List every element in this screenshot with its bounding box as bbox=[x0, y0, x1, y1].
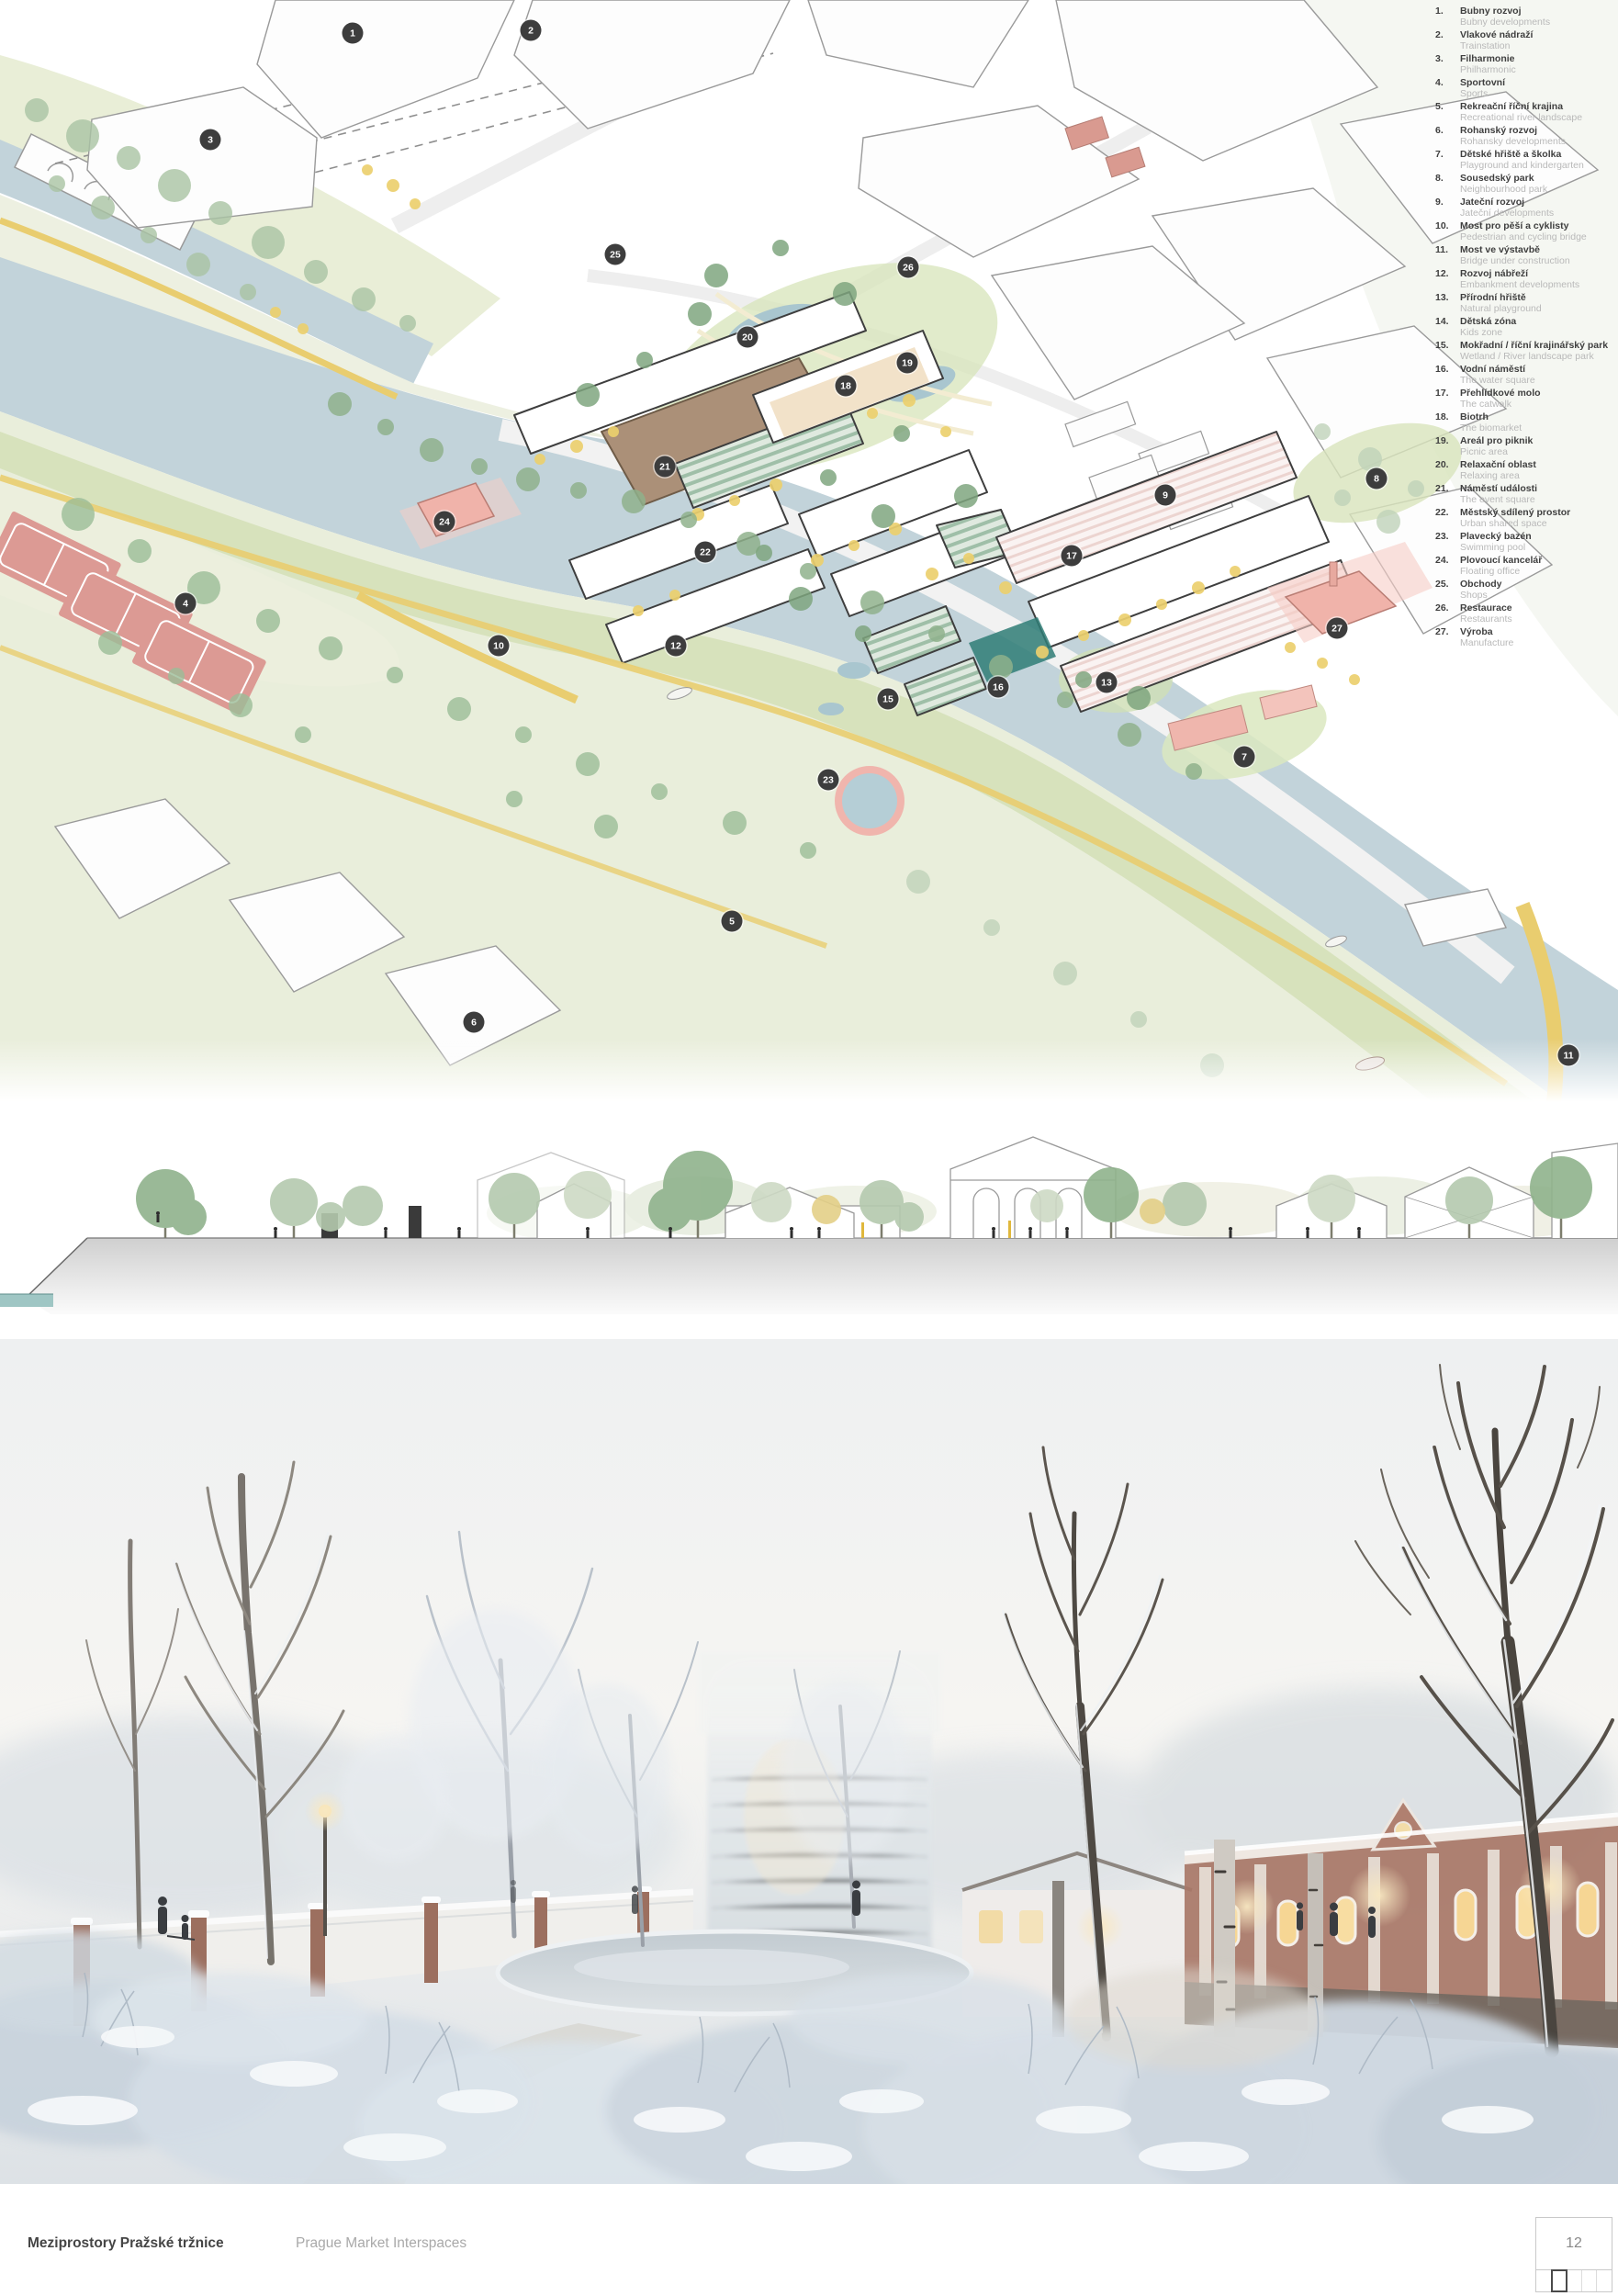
legend-item: 27. Výroba Manufacture bbox=[1435, 627, 1618, 648]
winter-render bbox=[0, 1339, 1618, 2184]
legend-item: 17. Přehlídkové molo The catwalk bbox=[1435, 388, 1618, 410]
legend-item: 6. Rohanský rozvoj Rohansky developments bbox=[1435, 126, 1618, 147]
legend-item: 8. Sousedský park Neighbourhood park bbox=[1435, 174, 1618, 195]
legend-item-label-cz: Mokřadní / říční krajinářský park bbox=[1460, 341, 1608, 352]
legend-item: 19. Areál pro piknik Picnic area bbox=[1435, 436, 1618, 457]
legend-item: 15. Mokřadní / říční krajinářský park We… bbox=[1435, 341, 1618, 362]
legend-item-labels: Rozvoj nábřeží Embankment developments bbox=[1460, 269, 1579, 290]
legend-item-label-en: Picnic area bbox=[1460, 447, 1533, 458]
legend-item: 22. Městský sdílený prostor Urban shared… bbox=[1435, 508, 1618, 529]
lit-window bbox=[979, 1910, 1003, 1943]
legend-item-labels: Most ve výstavbě Bridge under constructi… bbox=[1460, 245, 1570, 266]
legend-item-labels: Výroba Manufacture bbox=[1460, 627, 1513, 648]
legend-item-number: 3. bbox=[1435, 54, 1460, 75]
legend-item-labels: Přehlídkové molo The catwalk bbox=[1460, 388, 1541, 410]
legend-item-labels: Vodní náměstí The water square bbox=[1460, 365, 1535, 386]
legend-item-number: 11. bbox=[1435, 245, 1460, 266]
project-title-cz: Meziprostory Pražské tržnice bbox=[28, 2235, 224, 2252]
legend-item-number: 9. bbox=[1435, 197, 1460, 219]
legend-item: 5. Rekreační říční krajina Recreational … bbox=[1435, 102, 1618, 123]
legend-item-label-cz: Městský sdílený prostor bbox=[1460, 508, 1570, 519]
legend-item: 23. Plavecký bazén Swimming pool bbox=[1435, 532, 1618, 553]
legend-item-label-en: Neighbourhood park bbox=[1460, 185, 1547, 196]
page-number: 12 bbox=[1536, 2218, 1612, 2270]
render-artwork bbox=[0, 1339, 1618, 2184]
legend-item-label-en: Wetland / River landscape park bbox=[1460, 352, 1608, 363]
legend-item-label-en: Rohansky developments bbox=[1460, 137, 1566, 148]
legend-item-label-en: The catwalk bbox=[1460, 400, 1541, 411]
legend-item-labels: Filharmonie Philharmonic bbox=[1460, 54, 1516, 75]
legend-item-label-cz: Restaurace bbox=[1460, 603, 1512, 614]
legend-item: 21. Náměstí události The event square bbox=[1435, 484, 1618, 505]
pagination-cells bbox=[1536, 2270, 1612, 2291]
legend-item-labels: Bubny rozvoj Bubny developments bbox=[1460, 6, 1550, 28]
legend-item-label-cz: Rohanský rozvoj bbox=[1460, 126, 1566, 137]
legend-item-number: 27. bbox=[1435, 627, 1460, 648]
legend-item-label-en: Shops bbox=[1460, 591, 1502, 602]
legend-item-labels: Biotrh The biomarket bbox=[1460, 412, 1522, 433]
legend-item-label-en: Floating office bbox=[1460, 567, 1542, 578]
legend-item: 12. Rozvoj nábřeží Embankment developmen… bbox=[1435, 269, 1618, 290]
yellow-figure bbox=[1008, 1221, 1011, 1238]
legend-item-label-cz: Most ve výstavbě bbox=[1460, 245, 1570, 256]
project-title-en: Prague Market Interspaces bbox=[296, 2235, 466, 2252]
legend-item-label-cz: Plavecký bazén bbox=[1460, 532, 1532, 543]
legend-item-label-en: Jateční developments bbox=[1460, 208, 1554, 219]
sculpture bbox=[409, 1206, 421, 1238]
pagination-cell bbox=[1536, 2270, 1552, 2291]
legend-item-number: 7. bbox=[1435, 150, 1460, 171]
legend-item-label-en: Relaxing area bbox=[1460, 471, 1536, 482]
lantern-glow bbox=[1348, 1864, 1410, 1927]
legend-item-labels: Sousedský park Neighbourhood park bbox=[1460, 174, 1547, 195]
legend-item-label-cz: Areál pro piknik bbox=[1460, 436, 1533, 447]
legend-item-label-cz: Obchody bbox=[1460, 580, 1502, 591]
legend-item-labels: Relaxační oblast Relaxing area bbox=[1460, 460, 1536, 481]
pagination-cell bbox=[1552, 2270, 1567, 2291]
pagination-cell bbox=[1582, 2270, 1598, 2291]
legend-item-number: 14. bbox=[1435, 317, 1460, 338]
swimming-pool bbox=[835, 766, 905, 836]
legend-item: 24. Plovoucí kancelář Floating office bbox=[1435, 556, 1618, 577]
legend-item-label-en: Bubny developments bbox=[1460, 17, 1550, 28]
section-drawing bbox=[0, 1114, 1618, 1327]
yellow-figure bbox=[861, 1222, 864, 1238]
legend-item-label-en: Embankment developments bbox=[1460, 280, 1579, 291]
legend-item-labels: Most pro pěší a cyklisty Pedestrian and … bbox=[1460, 221, 1587, 242]
legend-item-label-en: Urban shared space bbox=[1460, 519, 1570, 530]
lit-window bbox=[1019, 1910, 1043, 1943]
legend-item-label-en: The water square bbox=[1460, 376, 1535, 387]
legend-item-labels: Sportovní Sports bbox=[1460, 78, 1505, 99]
legend-item-label-cz: Náměstí události bbox=[1460, 484, 1537, 495]
legend-item-number: 2. bbox=[1435, 30, 1460, 51]
legend-item-labels: Mokřadní / říční krajinářský park Wetlan… bbox=[1460, 341, 1608, 362]
legend-item: 14. Dětská zóna Kids zone bbox=[1435, 317, 1618, 338]
legend-item-label-cz: Filharmonie bbox=[1460, 54, 1516, 65]
legend-item-number: 4. bbox=[1435, 78, 1460, 99]
legend-item-number: 8. bbox=[1435, 174, 1460, 195]
legend-item-number: 12. bbox=[1435, 269, 1460, 290]
legend-item-label-en: Bridge under construction bbox=[1460, 256, 1570, 267]
legend-item-number: 19. bbox=[1435, 436, 1460, 457]
legend-item-labels: Plavecký bazén Swimming pool bbox=[1460, 532, 1532, 553]
legend-item-label-cz: Sousedský park bbox=[1460, 174, 1547, 185]
legend-item-number: 21. bbox=[1435, 484, 1460, 505]
legend-item-label-en: The event square bbox=[1460, 495, 1537, 506]
legend-item-label-en: Restaurants bbox=[1460, 614, 1512, 625]
legend-item-label-cz: Vlakové nádraží bbox=[1460, 30, 1533, 41]
legend-item-labels: Restaurace Restaurants bbox=[1460, 603, 1512, 625]
legend-item-number: 15. bbox=[1435, 341, 1460, 362]
legend-item-number: 5. bbox=[1435, 102, 1460, 123]
legend-item-labels: Rekreační říční krajina Recreational riv… bbox=[1460, 102, 1582, 123]
legend-item-number: 23. bbox=[1435, 532, 1460, 553]
river-water bbox=[0, 1294, 53, 1307]
legend-item-label-cz: Rozvoj nábřeží bbox=[1460, 269, 1579, 280]
legend-item-labels: Přírodní hřiště Natural playground bbox=[1460, 293, 1542, 314]
legend-item-label-cz: Dětské hřiště a školka bbox=[1460, 150, 1584, 161]
legend-item-number: 25. bbox=[1435, 580, 1460, 601]
map-bottom-fade bbox=[0, 1038, 1618, 1102]
legend-item: 3. Filharmonie Philharmonic bbox=[1435, 54, 1618, 75]
legend-item-labels: Plovoucí kancelář Floating office bbox=[1460, 556, 1542, 577]
legend-item: 13. Přírodní hřiště Natural playground bbox=[1435, 293, 1618, 314]
map-legend: 1. Bubny rozvoj Bubny developments 2. Vl… bbox=[1435, 6, 1618, 651]
legend-item-label-en: Trainstation bbox=[1460, 41, 1533, 52]
legend-item-number: 17. bbox=[1435, 388, 1460, 410]
legend-item-labels: Rohanský rozvoj Rohansky developments bbox=[1460, 126, 1566, 147]
legend-item-labels: Náměstí události The event square bbox=[1460, 484, 1537, 505]
legend-item-label-en: Sports bbox=[1460, 89, 1505, 100]
legend-item-label-cz: Relaxační oblast bbox=[1460, 460, 1536, 471]
legend-item: 20. Relaxační oblast Relaxing area bbox=[1435, 460, 1618, 481]
legend-item-number: 22. bbox=[1435, 508, 1460, 529]
legend-item-number: 13. bbox=[1435, 293, 1460, 314]
legend-item-label-en: Kids zone bbox=[1460, 328, 1516, 339]
legend-item-number: 1. bbox=[1435, 6, 1460, 28]
legend-item-label-en: The biomarket bbox=[1460, 423, 1522, 434]
legend-item-label-en: Manufacture bbox=[1460, 638, 1513, 649]
legend-item-labels: Vlakové nádraží Trainstation bbox=[1460, 30, 1533, 51]
legend-item: 4. Sportovní Sports bbox=[1435, 78, 1618, 99]
legend-item-label-cz: Přírodní hřiště bbox=[1460, 293, 1542, 304]
legend-item-number: 16. bbox=[1435, 365, 1460, 386]
legend-item: 2. Vlakové nádraží Trainstation bbox=[1435, 30, 1618, 51]
legend-item-label-en: Pedestrian and cycling bridge bbox=[1460, 232, 1587, 243]
legend-item-labels: Areál pro piknik Picnic area bbox=[1460, 436, 1533, 457]
legend-item-number: 6. bbox=[1435, 126, 1460, 147]
legend-item: 1. Bubny rozvoj Bubny developments bbox=[1435, 6, 1618, 28]
legend-item-number: 26. bbox=[1435, 603, 1460, 625]
pagination-cell bbox=[1567, 2270, 1582, 2291]
legend-item-labels: Dětské hřiště a školka Playground and ki… bbox=[1460, 150, 1584, 171]
legend-item: 16. Vodní náměstí The water square bbox=[1435, 365, 1618, 386]
legend-item: 26. Restaurace Restaurants bbox=[1435, 603, 1618, 625]
legend-item-label-cz: Biotrh bbox=[1460, 412, 1522, 423]
legend-item-label-en: Natural playground bbox=[1460, 304, 1542, 315]
legend-item-label-en: Playground and kindergarten bbox=[1460, 161, 1584, 172]
section-artwork bbox=[0, 1114, 1618, 1327]
legend-item-label-cz: Bubny rozvoj bbox=[1460, 6, 1550, 17]
legend-item-label-en: Swimming pool bbox=[1460, 543, 1532, 554]
legend-item: 10. Most pro pěší a cyklisty Pedestrian … bbox=[1435, 221, 1618, 242]
footer: Meziprostory Pražské tržnice Prague Mark… bbox=[0, 2184, 1618, 2296]
page-indicator: 12 bbox=[1535, 2217, 1612, 2292]
legend-item-labels: Jateční rozvoj Jateční developments bbox=[1460, 197, 1554, 219]
legend-item-number: 10. bbox=[1435, 221, 1460, 242]
legend-item-label-en: Philharmonic bbox=[1460, 65, 1516, 76]
masterplan-map: 1234567891011121315161718192021222324252… bbox=[0, 0, 1618, 1102]
legend-item-label-cz: Plovoucí kancelář bbox=[1460, 556, 1542, 567]
legend-item-number: 18. bbox=[1435, 412, 1460, 433]
legend-item: 7. Dětské hřiště a školka Playground and… bbox=[1435, 150, 1618, 171]
legend-item-label-en: Recreational river landscape bbox=[1460, 113, 1582, 124]
masterplan-artwork bbox=[0, 0, 1618, 1102]
legend-item-labels: Dětská zóna Kids zone bbox=[1460, 317, 1516, 338]
legend-item: 9. Jateční rozvoj Jateční developments bbox=[1435, 197, 1618, 219]
legend-item-number: 20. bbox=[1435, 460, 1460, 481]
legend-item: 25. Obchody Shops bbox=[1435, 580, 1618, 601]
legend-item-label-cz: Dětská zóna bbox=[1460, 317, 1516, 328]
pagination-cell bbox=[1597, 2270, 1612, 2291]
legend-item-number: 24. bbox=[1435, 556, 1460, 577]
legend-item: 18. Biotrh The biomarket bbox=[1435, 412, 1618, 433]
legend-item-label-cz: Rekreační říční krajina bbox=[1460, 102, 1582, 113]
legend-item-label-cz: Vodní náměstí bbox=[1460, 365, 1535, 376]
legend-item-label-cz: Sportovní bbox=[1460, 78, 1505, 89]
ground bbox=[0, 1238, 1618, 1314]
legend-item-label-cz: Výroba bbox=[1460, 627, 1513, 638]
legend-item-labels: Obchody Shops bbox=[1460, 580, 1502, 601]
legend-item-label-cz: Most pro pěší a cyklisty bbox=[1460, 221, 1587, 232]
legend-item-labels: Městský sdílený prostor Urban shared spa… bbox=[1460, 508, 1570, 529]
legend-item: 11. Most ve výstavbě Bridge under constr… bbox=[1435, 245, 1618, 266]
legend-item-label-cz: Přehlídkové molo bbox=[1460, 388, 1541, 400]
legend-item-label-cz: Jateční rozvoj bbox=[1460, 197, 1554, 208]
